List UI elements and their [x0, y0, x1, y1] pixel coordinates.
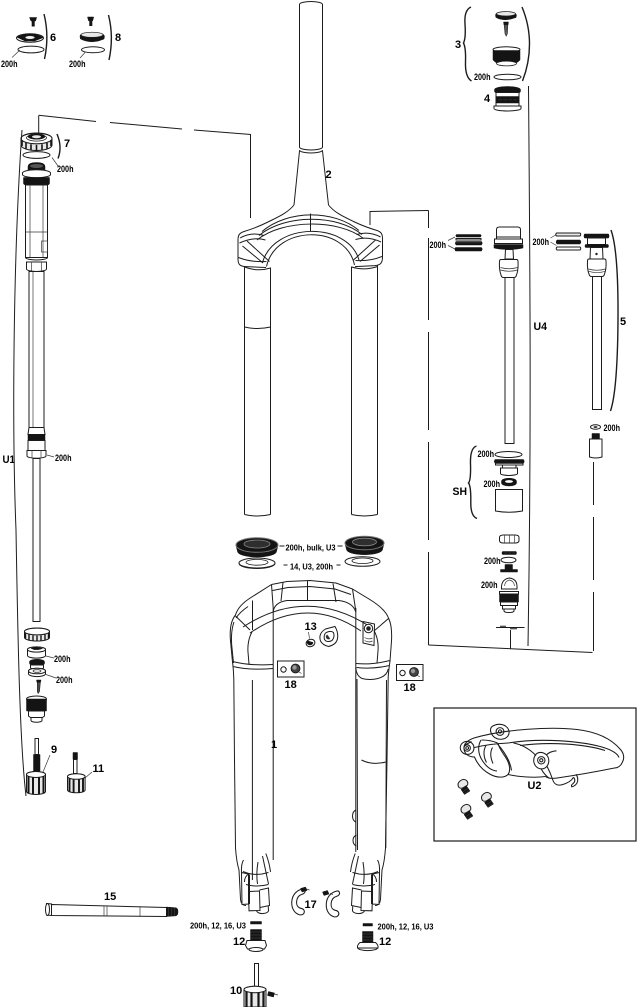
svg-text:6: 6	[50, 32, 56, 44]
svg-text:1: 1	[271, 739, 277, 751]
svg-text:U2: U2	[528, 780, 542, 792]
svg-text:200h: 200h	[481, 580, 498, 591]
svg-text:U1: U1	[3, 454, 16, 466]
svg-text:200h, 12, 16, U3: 200h, 12, 16, U3	[378, 922, 434, 932]
svg-text:200h, bulk, U3: 200h, bulk, U3	[286, 543, 336, 553]
svg-text:U4: U4	[534, 321, 548, 333]
svg-text:10: 10	[230, 985, 242, 997]
svg-text:18: 18	[285, 679, 297, 691]
svg-text:200h: 200h	[430, 240, 447, 251]
svg-text:15: 15	[104, 891, 116, 903]
svg-text:12: 12	[379, 936, 391, 948]
svg-text:2: 2	[326, 169, 332, 181]
svg-text:200h: 200h	[484, 479, 501, 490]
svg-text:200h: 200h	[69, 59, 86, 70]
svg-text:9: 9	[51, 744, 57, 756]
svg-text:200h: 200h	[54, 654, 71, 665]
svg-text:11: 11	[93, 763, 105, 775]
svg-text:200h: 200h	[56, 675, 73, 686]
svg-text:200h: 200h	[478, 449, 495, 460]
svg-text:4: 4	[484, 93, 491, 105]
svg-text:200h: 200h	[57, 164, 74, 175]
svg-text:17: 17	[305, 899, 317, 911]
svg-text:200h: 200h	[533, 237, 550, 248]
svg-text:18: 18	[404, 682, 416, 694]
svg-text:200h: 200h	[484, 556, 501, 567]
svg-text:200h, 12, 16, U3: 200h, 12, 16, U3	[190, 921, 246, 931]
svg-text:8: 8	[115, 32, 121, 44]
svg-text:200h: 200h	[604, 423, 621, 434]
svg-text:3: 3	[455, 39, 461, 51]
svg-text:200h: 200h	[1, 59, 18, 70]
svg-text:13: 13	[305, 621, 317, 633]
svg-text:5: 5	[620, 316, 626, 328]
svg-text:200h: 200h	[474, 72, 491, 83]
svg-text:200h: 200h	[55, 453, 72, 464]
svg-text:SH: SH	[453, 486, 468, 498]
svg-text:7: 7	[64, 138, 70, 150]
svg-text:12: 12	[233, 936, 245, 948]
svg-text:14, U3, 200h: 14, U3, 200h	[290, 562, 333, 572]
